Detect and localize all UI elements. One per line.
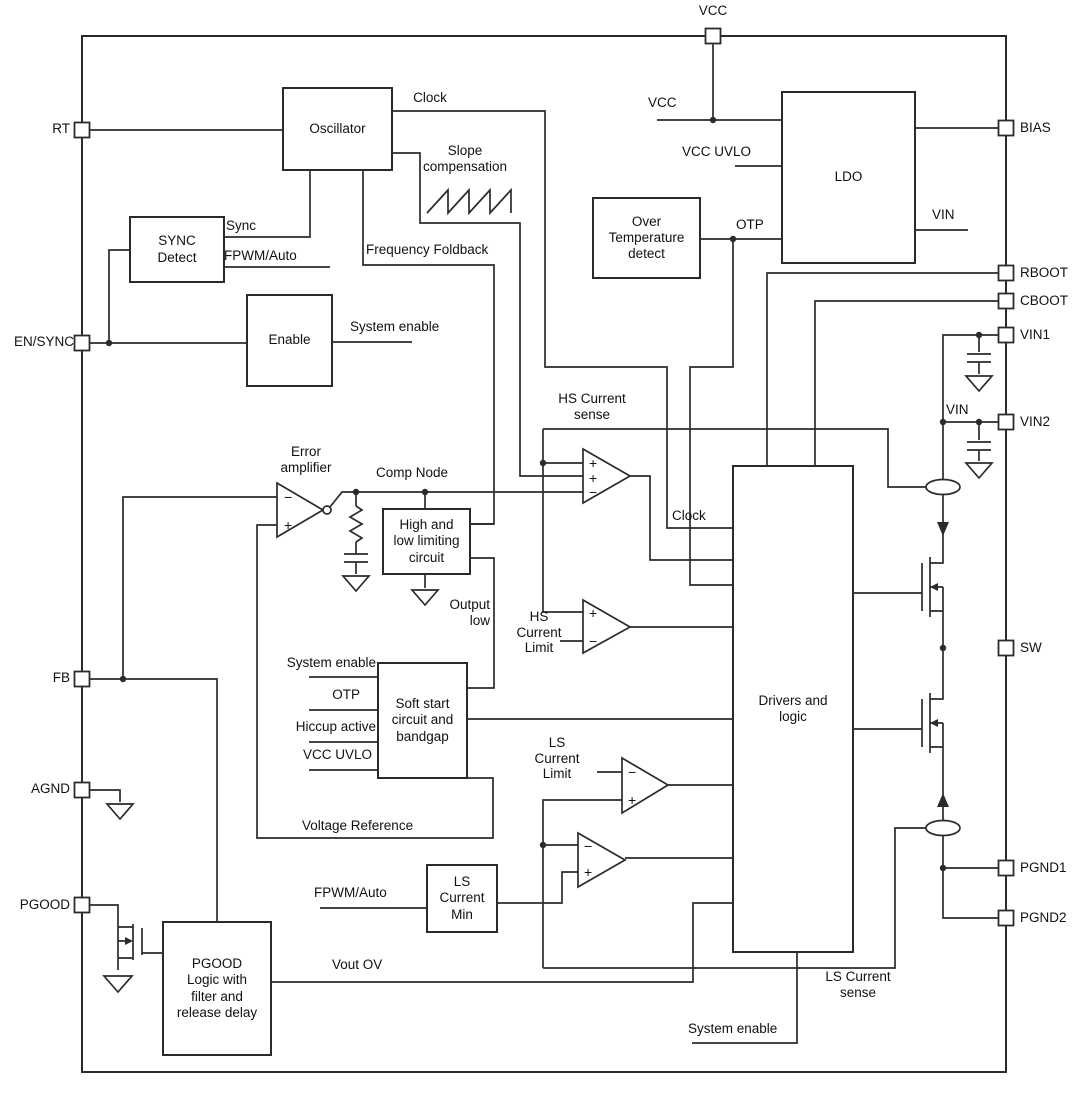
enable-block xyxy=(247,295,332,386)
mosfet-body-arrow xyxy=(930,719,938,727)
wire-slope-comp xyxy=(392,153,583,476)
comparators: − + + + − + − − + − + xyxy=(277,449,668,887)
ground-icon xyxy=(343,576,369,591)
diagram-graphics: − + + + − + − − + − + xyxy=(0,0,1083,1100)
wire-vout-ov xyxy=(271,903,733,982)
wire-comp-node xyxy=(330,492,583,507)
pin-vcc xyxy=(706,29,721,44)
pgood-mosfet xyxy=(82,905,163,970)
pin-pgood xyxy=(75,898,90,913)
sawtooth-icon xyxy=(427,190,511,213)
hs-current-sense-icon xyxy=(926,480,960,495)
soft-start-block xyxy=(378,663,467,778)
minus-sign: − xyxy=(584,838,592,854)
wire-pgnd xyxy=(943,868,998,918)
ls-current-min-block xyxy=(427,865,497,932)
ground-icon xyxy=(104,976,132,992)
pin-bias xyxy=(999,121,1014,136)
high-low-block xyxy=(383,509,470,574)
ls-current-sense-icon xyxy=(926,821,960,836)
wire-sync xyxy=(224,170,310,237)
plus-sign: + xyxy=(284,517,292,533)
pin-sw xyxy=(999,641,1014,656)
plus-sign: + xyxy=(589,605,597,621)
wire-vin2 xyxy=(943,422,998,461)
blocks xyxy=(130,88,915,1055)
wire-pwm-out xyxy=(630,476,733,560)
pin-fb xyxy=(75,672,90,687)
wire-hs-sense-vert xyxy=(543,429,583,641)
pin-rt xyxy=(75,123,90,138)
pgood-logic-block xyxy=(163,922,271,1055)
wire-comp-rc xyxy=(344,492,368,574)
current-arrow-down xyxy=(937,522,949,536)
wire-soft-start xyxy=(309,677,733,770)
wire-fb xyxy=(82,497,277,922)
minus-sign: − xyxy=(628,764,636,780)
wire-rboot xyxy=(767,273,998,466)
minus-sign: − xyxy=(589,484,597,500)
pin-cboot xyxy=(999,294,1014,309)
pin-vin1 xyxy=(999,328,1014,343)
pin-agnd xyxy=(75,783,90,798)
current-arrow-up xyxy=(937,793,949,807)
oscillator-block xyxy=(283,88,392,170)
resistor-zigzag xyxy=(350,506,362,542)
mosfet-body-arrow xyxy=(930,583,938,591)
mosfet-body-arrow xyxy=(125,937,133,945)
minus-sign: − xyxy=(284,489,292,505)
pin-rboot xyxy=(999,266,1014,281)
pin-pgnd1 xyxy=(999,861,1014,876)
wire-vcc xyxy=(657,44,782,120)
ground-icon xyxy=(412,590,438,605)
ground-icon xyxy=(107,804,133,819)
wire-system-enable-drv xyxy=(692,953,797,1043)
error-amplifier-output-bubble xyxy=(323,506,331,514)
ls-mosfet xyxy=(853,648,943,868)
ground-icons xyxy=(104,376,992,992)
hs-mosfet xyxy=(853,557,943,648)
block-diagram: − + + + − + − − + − + xyxy=(0,0,1083,1100)
pin-pgnd2 xyxy=(999,911,1014,926)
pin-vin2 xyxy=(999,415,1014,430)
over-temp-block xyxy=(593,198,700,278)
pin-en-sync xyxy=(75,336,90,351)
wire-clock xyxy=(392,111,733,528)
ground-icon xyxy=(966,463,992,478)
minus-sign: − xyxy=(589,633,597,649)
plus-sign: + xyxy=(584,864,592,880)
ground-icon xyxy=(966,376,992,391)
plus-sign: + xyxy=(589,455,597,471)
drivers-block xyxy=(733,466,853,952)
plus-sign: + xyxy=(628,792,636,808)
sync-detect-block xyxy=(130,217,224,282)
ldo-block xyxy=(782,92,915,263)
